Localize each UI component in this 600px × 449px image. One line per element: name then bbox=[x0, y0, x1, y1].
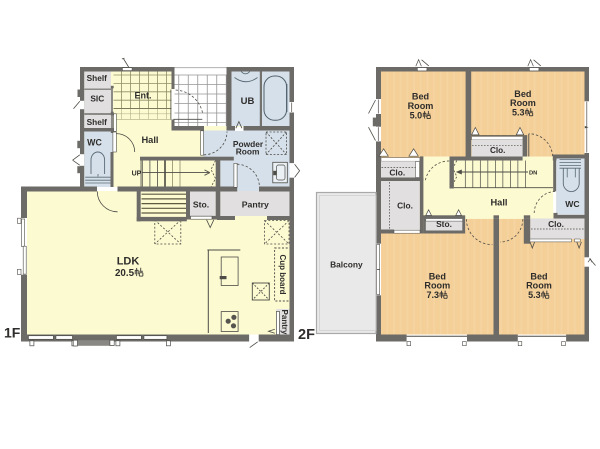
svg-text:SIC: SIC bbox=[90, 94, 104, 104]
svg-text:1F: 1F bbox=[4, 325, 21, 341]
svg-text:20.5: 20.5 bbox=[115, 268, 135, 279]
svg-text:LDK: LDK bbox=[117, 255, 140, 267]
svg-text:Clo.: Clo. bbox=[490, 146, 505, 155]
svg-text:WC: WC bbox=[87, 137, 102, 147]
svg-text:Sto.: Sto. bbox=[436, 219, 452, 229]
svg-text:5.3: 5.3 bbox=[528, 290, 541, 300]
svg-text:Shelf: Shelf bbox=[87, 117, 108, 127]
svg-text:7.3: 7.3 bbox=[426, 290, 439, 300]
svg-text:Pantry: Pantry bbox=[242, 199, 269, 209]
svg-text:WC: WC bbox=[565, 199, 579, 209]
svg-text:Clo.: Clo. bbox=[397, 201, 413, 211]
svg-text:UP: UP bbox=[132, 171, 142, 178]
svg-text:UB: UB bbox=[241, 96, 255, 107]
svg-text:Clo.: Clo. bbox=[548, 219, 564, 229]
svg-text:Hall: Hall bbox=[141, 135, 158, 145]
svg-text:Ent.: Ent. bbox=[135, 90, 152, 100]
svg-text:Balcony: Balcony bbox=[330, 259, 363, 269]
svg-text:Sto.: Sto. bbox=[193, 199, 209, 209]
svg-text:5.0: 5.0 bbox=[410, 110, 423, 120]
svg-text:Clo.: Clo. bbox=[389, 167, 405, 177]
svg-text:Room: Room bbox=[236, 147, 260, 157]
svg-text:5.3: 5.3 bbox=[512, 108, 525, 118]
svg-text:DN: DN bbox=[529, 170, 537, 176]
svg-text:Cup board: Cup board bbox=[278, 255, 287, 295]
svg-text:Hall: Hall bbox=[490, 198, 507, 208]
svg-text:2F: 2F bbox=[298, 327, 315, 343]
svg-text:Shelf: Shelf bbox=[87, 73, 108, 83]
svg-text:Pantry: Pantry bbox=[280, 310, 289, 335]
